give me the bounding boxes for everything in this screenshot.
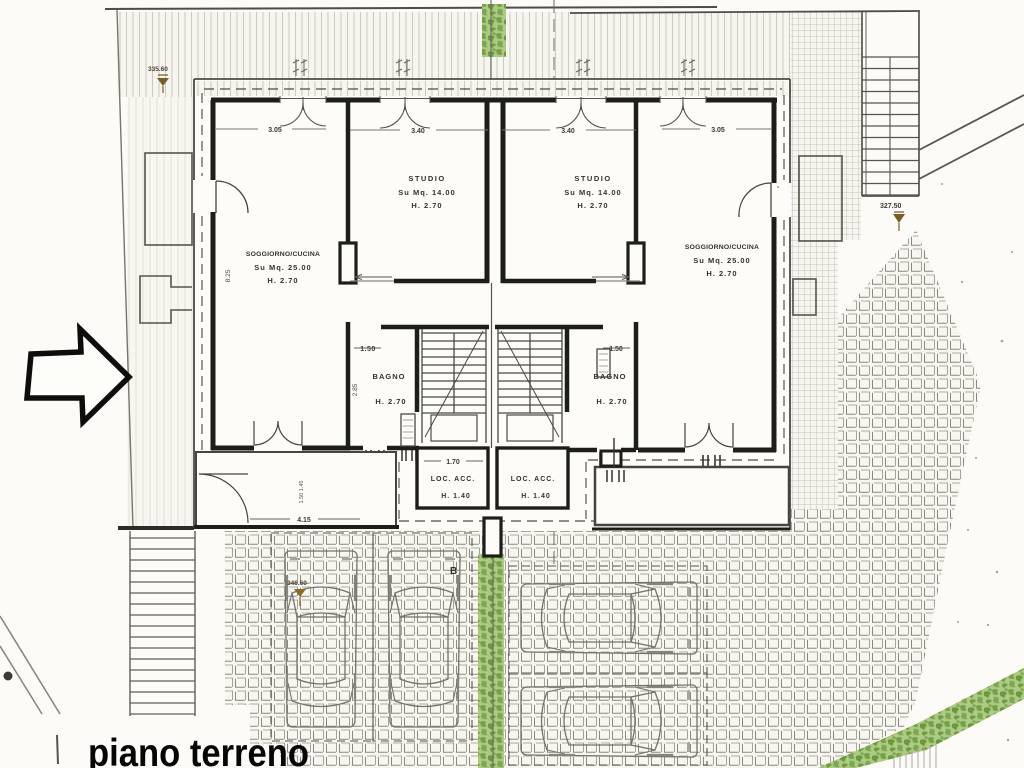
svg-text:STUDIO: STUDIO bbox=[408, 174, 445, 183]
svg-text:SOGGIORNO/CUCINA: SOGGIORNO/CUCINA bbox=[246, 251, 320, 258]
svg-text:H. 2.70: H. 2.70 bbox=[706, 269, 737, 278]
svg-text:346.60: 346.60 bbox=[287, 580, 307, 587]
svg-text:Su Mq. 14.00: Su Mq. 14.00 bbox=[398, 188, 455, 197]
svg-text:SOGGIORNO/CUCINA: SOGGIORNO/CUCINA bbox=[685, 244, 759, 251]
svg-text:8.25: 8.25 bbox=[225, 269, 232, 282]
svg-text:1.50 1.45: 1.50 1.45 bbox=[299, 481, 305, 504]
svg-text:LOC. ACC.: LOC. ACC. bbox=[431, 476, 476, 483]
svg-text:2.85: 2.85 bbox=[352, 383, 359, 396]
svg-text:H. 1.40: H. 1.40 bbox=[441, 493, 471, 500]
svg-text:1.50: 1.50 bbox=[360, 346, 376, 353]
svg-text:3.05: 3.05 bbox=[711, 127, 725, 134]
svg-text:1.70: 1.70 bbox=[446, 459, 460, 466]
svg-text:4.15: 4.15 bbox=[297, 517, 311, 524]
svg-text:3.05: 3.05 bbox=[268, 127, 282, 134]
svg-text:H. 2.70: H. 2.70 bbox=[577, 201, 608, 210]
svg-text:1.50: 1.50 bbox=[609, 346, 623, 353]
svg-text:Su Mq. 14.00: Su Mq. 14.00 bbox=[564, 188, 621, 197]
svg-text:Su Mq. 25.00: Su Mq. 25.00 bbox=[254, 263, 311, 272]
svg-text:H. 2.70: H. 2.70 bbox=[267, 276, 298, 285]
svg-text:B: B bbox=[450, 566, 457, 577]
svg-text:H. 1.40: H. 1.40 bbox=[521, 493, 551, 500]
svg-text:piano terreno: piano terreno bbox=[88, 732, 309, 768]
svg-text:3.40: 3.40 bbox=[561, 128, 575, 135]
svg-text:327.50: 327.50 bbox=[880, 203, 902, 210]
svg-text:3.40: 3.40 bbox=[411, 128, 425, 135]
svg-text:H. 2.70: H. 2.70 bbox=[375, 397, 406, 406]
svg-text:335.60: 335.60 bbox=[148, 66, 168, 73]
svg-text:Su Mq. 25.00: Su Mq. 25.00 bbox=[693, 256, 750, 265]
svg-text:H. 2.70: H. 2.70 bbox=[596, 397, 627, 406]
svg-text:STUDIO: STUDIO bbox=[574, 174, 611, 183]
svg-text:LOC. ACC.: LOC. ACC. bbox=[511, 476, 556, 483]
svg-text:BAGNO: BAGNO bbox=[373, 372, 406, 381]
svg-text:H. 2.70: H. 2.70 bbox=[411, 201, 442, 210]
svg-text:BAGNO: BAGNO bbox=[594, 372, 627, 381]
